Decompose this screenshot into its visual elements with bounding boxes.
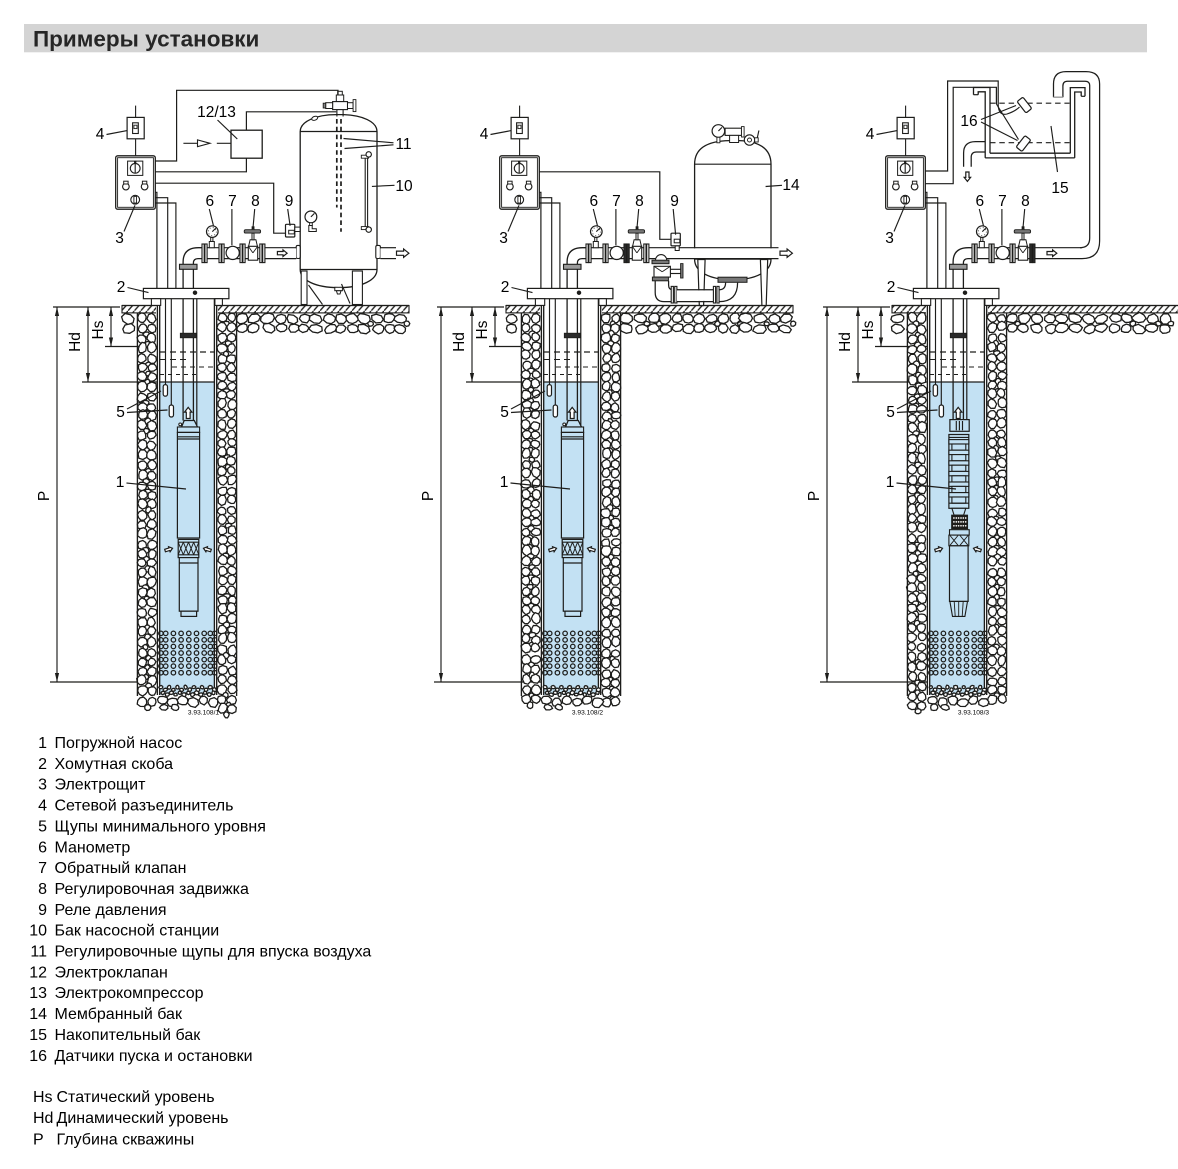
svg-text:15: 15 xyxy=(1051,180,1068,197)
svg-text:Hs: Hs xyxy=(860,320,877,339)
svg-text:Регулировочная задвижка: Регулировочная задвижка xyxy=(55,881,250,898)
svg-text:4: 4 xyxy=(96,126,105,143)
svg-text:Манометр: Манометр xyxy=(55,839,131,856)
svg-text:11: 11 xyxy=(395,136,411,153)
svg-text:5: 5 xyxy=(500,404,509,421)
svg-text:Электрощит: Электрощит xyxy=(55,777,147,794)
svg-text:Примеры установки: Примеры установки xyxy=(33,27,259,52)
svg-text:10: 10 xyxy=(29,923,47,940)
svg-text:16: 16 xyxy=(29,1048,47,1065)
svg-text:Датчики пуска и остановки: Датчики пуска и остановки xyxy=(55,1048,253,1065)
svg-text:Накопительный бак: Накопительный бак xyxy=(55,1027,202,1044)
svg-text:6: 6 xyxy=(589,193,598,210)
svg-text:Hs: Hs xyxy=(33,1089,53,1106)
svg-text:Регулировочные щупы для впуска: Регулировочные щупы для впуска воздуха xyxy=(55,944,372,961)
svg-text:8: 8 xyxy=(635,193,644,210)
svg-text:4: 4 xyxy=(38,798,47,815)
svg-text:12: 12 xyxy=(29,964,47,981)
svg-text:1: 1 xyxy=(116,474,125,491)
svg-text:7: 7 xyxy=(998,193,1007,210)
svg-text:2: 2 xyxy=(501,279,510,296)
svg-text:7: 7 xyxy=(228,193,237,210)
svg-text:Hd: Hd xyxy=(451,332,468,352)
svg-text:2: 2 xyxy=(38,756,47,773)
svg-text:Hd: Hd xyxy=(33,1110,53,1127)
svg-text:1: 1 xyxy=(886,474,895,491)
svg-text:3: 3 xyxy=(885,230,894,247)
svg-text:6: 6 xyxy=(205,193,214,210)
svg-text:10: 10 xyxy=(395,178,413,195)
svg-text:Электроклапан: Электроклапан xyxy=(55,964,168,981)
svg-text:1: 1 xyxy=(38,735,47,752)
svg-text:4: 4 xyxy=(480,126,489,143)
svg-text:Погружной насос: Погружной насос xyxy=(55,735,183,752)
svg-text:P: P xyxy=(36,491,53,501)
svg-text:3.93.108/1: 3.93.108/1 xyxy=(188,710,219,717)
svg-text:5: 5 xyxy=(38,818,47,835)
svg-text:Обратный клапан: Обратный клапан xyxy=(55,860,187,877)
svg-text:9: 9 xyxy=(38,902,47,919)
svg-text:6: 6 xyxy=(975,193,984,210)
svg-text:Hs: Hs xyxy=(474,320,491,339)
svg-text:Статический уровень: Статический уровень xyxy=(57,1089,215,1106)
svg-text:Щупы минимального уровня: Щупы минимального уровня xyxy=(55,818,266,835)
svg-text:13: 13 xyxy=(29,985,47,1002)
svg-text:8: 8 xyxy=(38,881,47,898)
svg-text:8: 8 xyxy=(1021,193,1030,210)
svg-text:16: 16 xyxy=(960,113,977,130)
svg-text:6: 6 xyxy=(38,839,47,856)
svg-text:Hd: Hd xyxy=(837,332,854,352)
svg-text:9: 9 xyxy=(670,193,679,210)
svg-text:9: 9 xyxy=(285,193,294,210)
svg-text:11: 11 xyxy=(30,944,47,961)
svg-text:14: 14 xyxy=(782,177,800,194)
svg-text:1: 1 xyxy=(500,474,509,491)
svg-text:Бак насосной станции: Бак насосной станции xyxy=(55,923,220,940)
svg-text:8: 8 xyxy=(251,193,260,210)
svg-text:Хомутная скоба: Хомутная скоба xyxy=(55,756,174,773)
svg-text:14: 14 xyxy=(29,1006,47,1023)
svg-text:3: 3 xyxy=(115,230,124,247)
svg-text:Сетевой разъединитель: Сетевой разъединитель xyxy=(55,798,234,815)
svg-text:Hs: Hs xyxy=(90,320,107,339)
svg-text:3: 3 xyxy=(38,777,47,794)
svg-text:Электрокомпрессор: Электрокомпрессор xyxy=(55,985,204,1002)
svg-text:P: P xyxy=(420,491,437,501)
svg-text:3.93.108/2: 3.93.108/2 xyxy=(572,710,603,717)
svg-text:2: 2 xyxy=(887,279,896,296)
svg-text:Динамический уровень: Динамический уровень xyxy=(57,1110,229,1127)
svg-text:7: 7 xyxy=(612,193,621,210)
svg-text:Мембранный бак: Мембранный бак xyxy=(55,1006,183,1023)
svg-text:12/13: 12/13 xyxy=(197,104,236,121)
svg-text:2: 2 xyxy=(117,279,126,296)
svg-text:4: 4 xyxy=(866,126,875,143)
svg-text:Глубина скважины: Глубина скважины xyxy=(57,1132,195,1149)
svg-text:Реле давления: Реле давления xyxy=(55,902,167,919)
svg-text:3.93.108/3: 3.93.108/3 xyxy=(958,710,989,717)
svg-text:P: P xyxy=(806,491,823,501)
svg-text:P: P xyxy=(33,1132,44,1149)
svg-text:3: 3 xyxy=(499,230,508,247)
svg-text:Hd: Hd xyxy=(67,332,84,352)
svg-text:5: 5 xyxy=(116,404,125,421)
svg-text:15: 15 xyxy=(29,1027,47,1044)
svg-text:5: 5 xyxy=(886,404,895,421)
svg-text:7: 7 xyxy=(38,860,47,877)
